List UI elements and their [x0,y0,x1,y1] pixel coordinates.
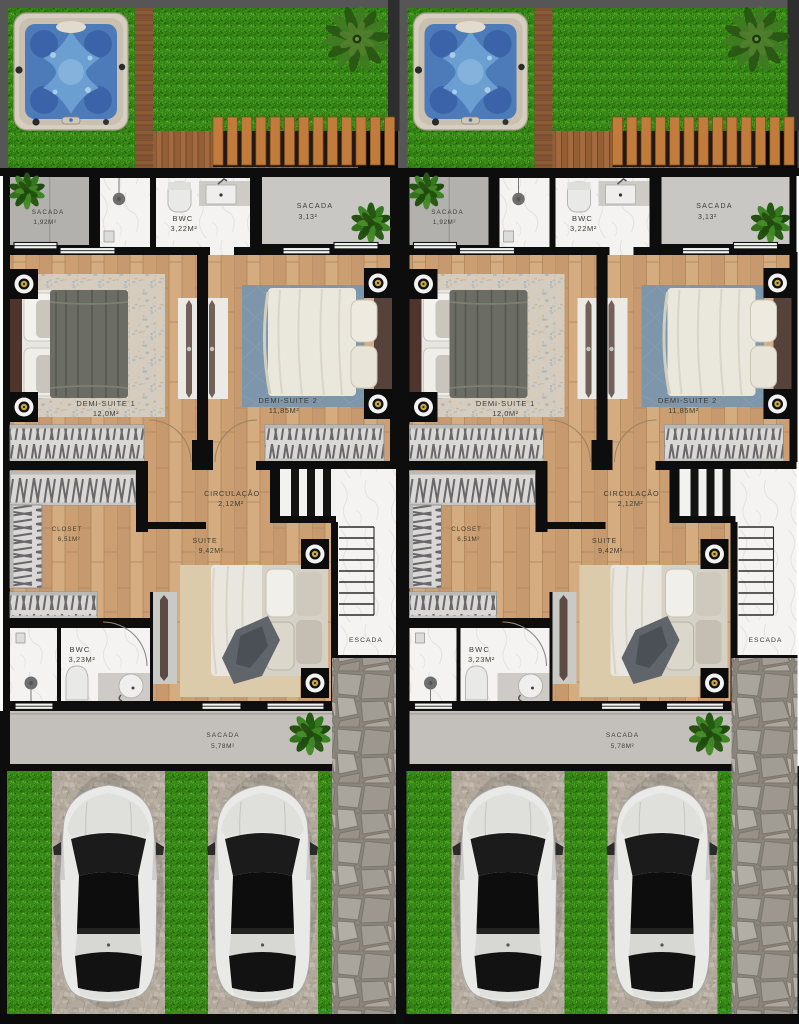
svg-text:DEMI-SUITE 1: DEMI-SUITE 1 [476,399,535,408]
svg-text:SACADA: SACADA [297,203,334,210]
svg-text:SUITE: SUITE [192,538,217,545]
svg-text:3,23M²: 3,23M² [468,655,495,664]
svg-text:5,78M²: 5,78M² [211,743,235,750]
svg-text:9,42M²: 9,42M² [199,548,224,555]
svg-text:6,51M²: 6,51M² [457,536,480,543]
svg-text:DEMI-SUITE 2: DEMI-SUITE 2 [658,396,717,405]
svg-text:11,85M²: 11,85M² [668,406,698,415]
svg-text:SACADA: SACADA [206,732,239,739]
svg-text:SACADA: SACADA [431,209,464,216]
svg-text:2,12M²: 2,12M² [618,499,644,508]
svg-text:ESCADA: ESCADA [749,637,783,644]
svg-text:DEMI-SUITE 1: DEMI-SUITE 1 [76,399,135,408]
svg-text:1,92M²: 1,92M² [433,219,456,226]
svg-text:SACADA: SACADA [606,732,639,739]
svg-text:9,42M²: 9,42M² [598,548,623,555]
svg-text:5,78M²: 5,78M² [611,743,635,750]
svg-text:SACADA: SACADA [696,203,733,210]
svg-text:3,22M²: 3,22M² [171,224,198,233]
svg-text:DEMI-SUITE 2: DEMI-SUITE 2 [258,396,317,405]
svg-text:11,85M²: 11,85M² [269,406,299,415]
svg-text:BWC: BWC [469,645,490,654]
svg-text:3,22M²: 3,22M² [570,224,597,233]
svg-text:ESCADA: ESCADA [349,637,383,644]
svg-text:CLOSET: CLOSET [52,526,83,533]
svg-text:12,0M²: 12,0M² [93,409,119,418]
svg-text:1,92M²: 1,92M² [33,219,56,226]
svg-text:SACADA: SACADA [32,209,65,216]
svg-text:BWC: BWC [69,645,90,654]
svg-text:3,23M²: 3,23M² [69,655,96,664]
svg-text:6,51M²: 6,51M² [58,536,81,543]
svg-text:2,12M²: 2,12M² [218,499,244,508]
svg-text:CIRCULAÇÃO: CIRCULAÇÃO [204,489,260,498]
svg-text:CLOSET: CLOSET [451,526,482,533]
svg-text:CIRCULAÇÃO: CIRCULAÇÃO [604,489,660,498]
svg-text:BWC: BWC [172,214,193,223]
svg-text:12,0M²: 12,0M² [492,409,518,418]
svg-text:3,13²: 3,13² [299,214,318,221]
svg-text:SUITE: SUITE [592,538,617,545]
svg-text:BWC: BWC [572,214,593,223]
svg-text:3,13²: 3,13² [698,214,717,221]
